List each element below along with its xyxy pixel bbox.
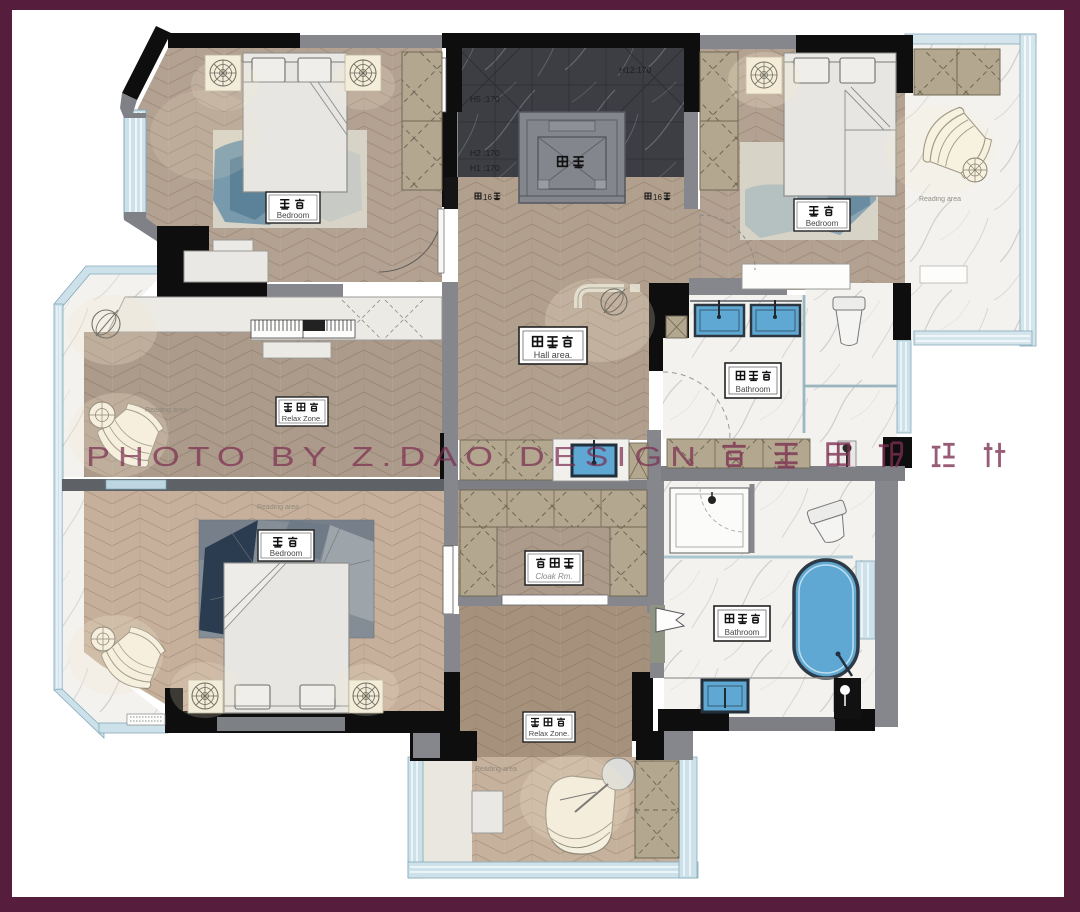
svg-text:Reading area: Reading area [145, 407, 187, 414]
svg-text:Hall area.: Hall area. [534, 350, 573, 360]
svg-text:H1 :170: H1 :170 [470, 163, 500, 173]
svg-text:Relax Zone.: Relax Zone. [529, 729, 569, 738]
svg-text:H2 :170: H2 :170 [470, 148, 500, 158]
svg-text:Bedroom: Bedroom [806, 219, 839, 228]
svg-text:PHOTO BY Z.DAO DESIGN: PHOTO BY Z.DAO DESIGN [86, 441, 704, 472]
svg-text:Reading area: Reading area [919, 196, 961, 203]
svg-text:Reading area: Reading area [475, 766, 517, 773]
svg-text:Relax Zone.: Relax Zone. [282, 414, 322, 423]
svg-text:Cloak Rm.: Cloak Rm. [535, 572, 572, 581]
svg-text:16: 16 [653, 193, 662, 202]
svg-text:16: 16 [483, 193, 492, 202]
svg-text:Reading area: Reading area [257, 504, 299, 511]
svg-text:Bedroom: Bedroom [270, 549, 303, 558]
svg-text:Bedroom: Bedroom [277, 211, 310, 220]
svg-text:Bathroom: Bathroom [736, 385, 771, 394]
svg-text:H12:170: H12:170 [619, 65, 651, 75]
svg-text:H5 :170: H5 :170 [470, 94, 500, 104]
svg-text:Bathroom: Bathroom [725, 628, 760, 637]
